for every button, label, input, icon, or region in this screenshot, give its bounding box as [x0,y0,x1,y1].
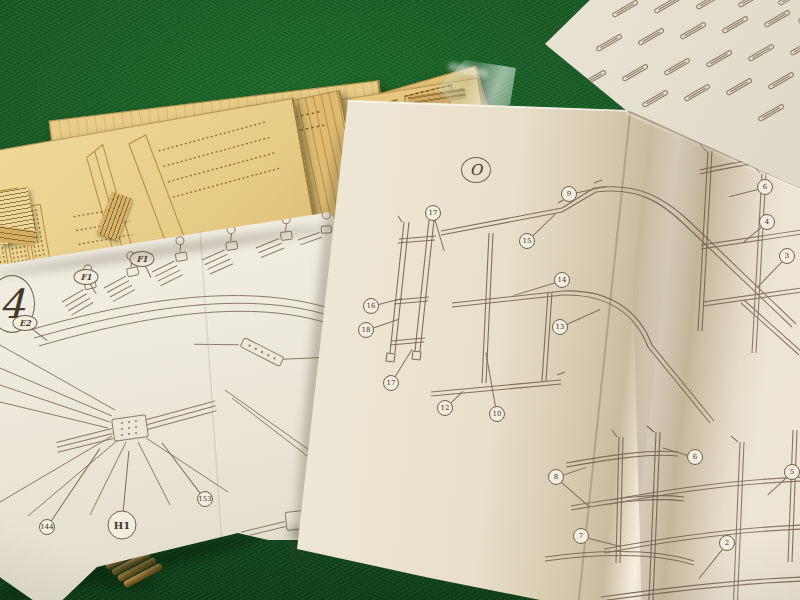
part-number-callout: 5 [784,464,800,480]
part-group-label: E2 [13,315,38,331]
photo-model-kit-instructions: 4F1F1E2H1153144 [0,0,800,600]
part-number-callout: 153 [197,491,213,507]
part-number-callout: 12 [437,400,453,416]
part-number-callout: 16 [363,298,379,314]
part-number-callout: 9 [561,186,577,202]
callout-leader-line [162,442,206,500]
part-number-callout: 17 [383,375,399,391]
callout-leader-line [47,448,101,528]
part-number-callout: 15 [519,233,535,249]
part-number-callout: 6 [757,179,773,195]
part-number-callout: 14 [554,272,570,288]
part-group-label: F1 [74,269,99,285]
part-number-callout: 10 [489,406,505,422]
part-number-callout: 8 [548,469,564,485]
part-number-callout: 4 [759,214,775,230]
part-number-callout: 3 [779,248,795,264]
part-number-callout: 17 [425,205,441,221]
sheet-label: O [461,157,491,183]
part-number-callout: 7 [573,528,589,544]
part-number-callout: 144 [39,519,55,535]
part-number-callout: 18 [358,322,374,338]
part-number-callout: H1 [108,511,137,540]
part-number-callout: 2 [719,535,735,551]
part-number-callout: 6 [687,449,703,465]
part-number-callout: 13 [552,319,568,335]
